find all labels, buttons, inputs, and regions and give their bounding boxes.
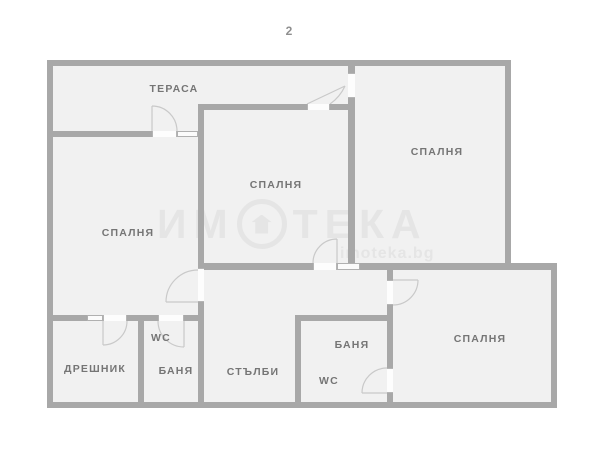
room-label-wc-left: WC <box>151 332 171 344</box>
room-label-bedroom-top-right: СПАЛНЯ <box>411 146 464 158</box>
room-label-bedroom-bottom-right: СПАЛНЯ <box>454 333 507 345</box>
wall-outer-left <box>47 60 53 408</box>
wall-right-bath-top <box>295 315 393 321</box>
watermark-text-prefix: ИМ <box>157 201 235 248</box>
room-label-terrace: ТЕРАСА <box>150 83 199 95</box>
room-label-stairs: СТЪЛБИ <box>227 366 280 378</box>
wall-outer-top <box>47 60 511 66</box>
window-terrace-wall <box>177 131 198 137</box>
house-icon <box>252 215 272 234</box>
wall-closet-bath-divider <box>138 315 144 408</box>
door-opening-bottom-right-bedroom <box>387 280 393 305</box>
room-label-bath-right: БАНЯ <box>335 339 370 351</box>
wall-stairs-bath-divider <box>295 315 301 408</box>
wall-main-vertical <box>198 104 204 408</box>
door-opening-left-bedroom <box>198 268 204 302</box>
door-opening-middle-bedroom-hall <box>313 263 337 270</box>
door-opening-left-bath <box>158 315 184 321</box>
wall-outer-bottom <box>47 402 557 408</box>
window-divider-wall <box>337 263 360 270</box>
wall-outer-right-upper <box>505 60 511 270</box>
room-label-wc-right: WC <box>319 375 339 387</box>
door-opening-terrace <box>152 131 177 137</box>
floor-number-label: 2 <box>286 24 293 38</box>
floor-plan: 2 ИМ ТЕКА imoteka.bg <box>0 0 600 450</box>
door-opening-right-bath <box>387 368 393 393</box>
imoteka-o-logo-icon <box>237 199 287 249</box>
wall-middle-bedroom-top <box>198 104 355 110</box>
room-label-bedroom-left: СПАЛНЯ <box>102 227 155 239</box>
wall-outer-right-lower <box>551 263 557 408</box>
wall-bedroom-divider <box>198 263 557 270</box>
room-label-bedroom-middle: СПАЛНЯ <box>250 179 303 191</box>
door-opening-right-bedroom-terrace <box>348 73 355 98</box>
room-label-closet: ДРЕШНИК <box>64 363 126 375</box>
window-left-bedroom-wall <box>87 315 103 321</box>
room-label-bath-left: БАНЯ <box>159 365 194 377</box>
door-opening-middle-bedroom-terrace <box>307 104 330 110</box>
watermark-text-suffix: ТЕКА <box>293 201 428 248</box>
door-opening-closet <box>103 315 127 321</box>
